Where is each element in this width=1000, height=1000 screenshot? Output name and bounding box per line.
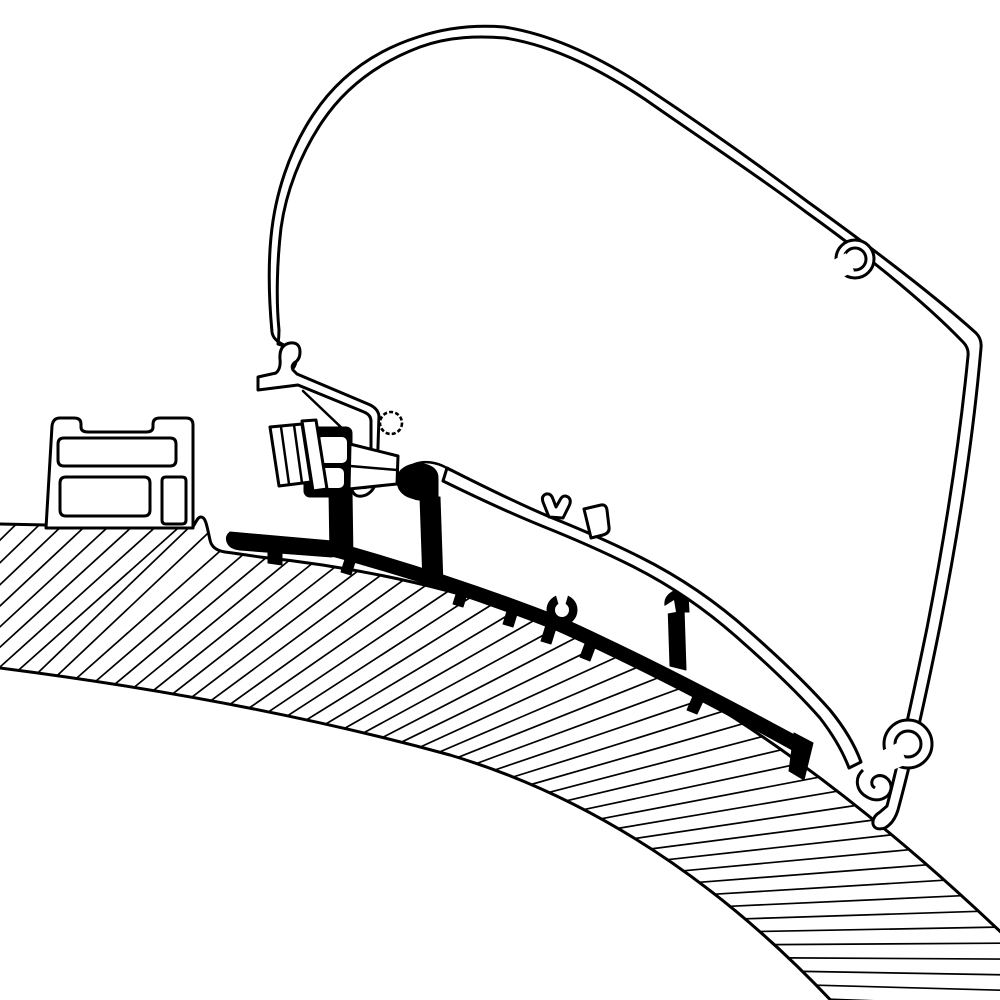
- adapter-knuckle-hook: [397, 464, 438, 499]
- case-end-j-hook: [857, 770, 891, 800]
- bolt-hex-head: [270, 424, 311, 486]
- case-upper-c-clip: [830, 240, 874, 280]
- awning-adapter-cross-section: [0, 0, 1000, 1000]
- case-lower-c-clip: [880, 720, 932, 772]
- bracket-serrated-boss: [380, 412, 402, 434]
- adapter-post-under-knuckle: [420, 497, 443, 585]
- rail-clip-prongs: [542, 494, 570, 518]
- technical-diagram-canvas: [0, 0, 1000, 1000]
- adapter-hook-post: [668, 605, 686, 670]
- left-rail-body: [46, 418, 193, 528]
- left-rail-profile: [46, 418, 193, 528]
- adapter-post-under-clamp: [329, 491, 353, 560]
- adapter-arm-foot: [268, 549, 282, 565]
